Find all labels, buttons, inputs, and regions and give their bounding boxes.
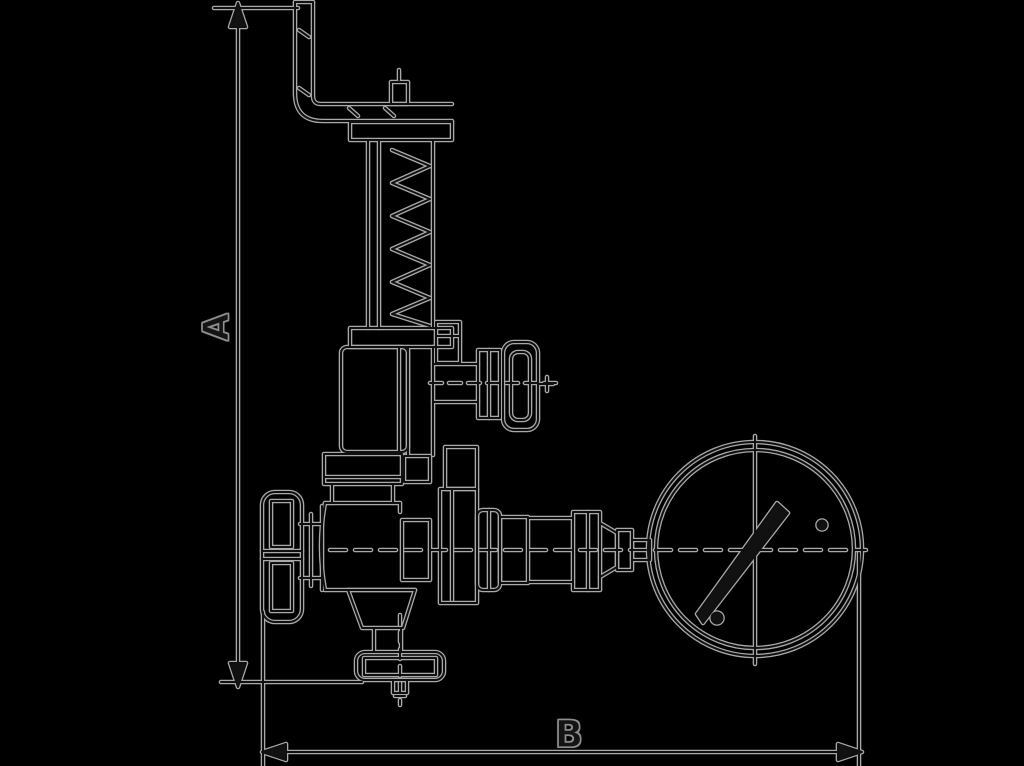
dimension-label-a: A — [194, 305, 238, 349]
dimension-label-b: B — [547, 712, 591, 756]
valve-dimension-drawing: A B — [0, 0, 1024, 766]
drawing-core-layer — [214, 2, 866, 766]
valve-drawing-canvas — [0, 0, 1024, 766]
